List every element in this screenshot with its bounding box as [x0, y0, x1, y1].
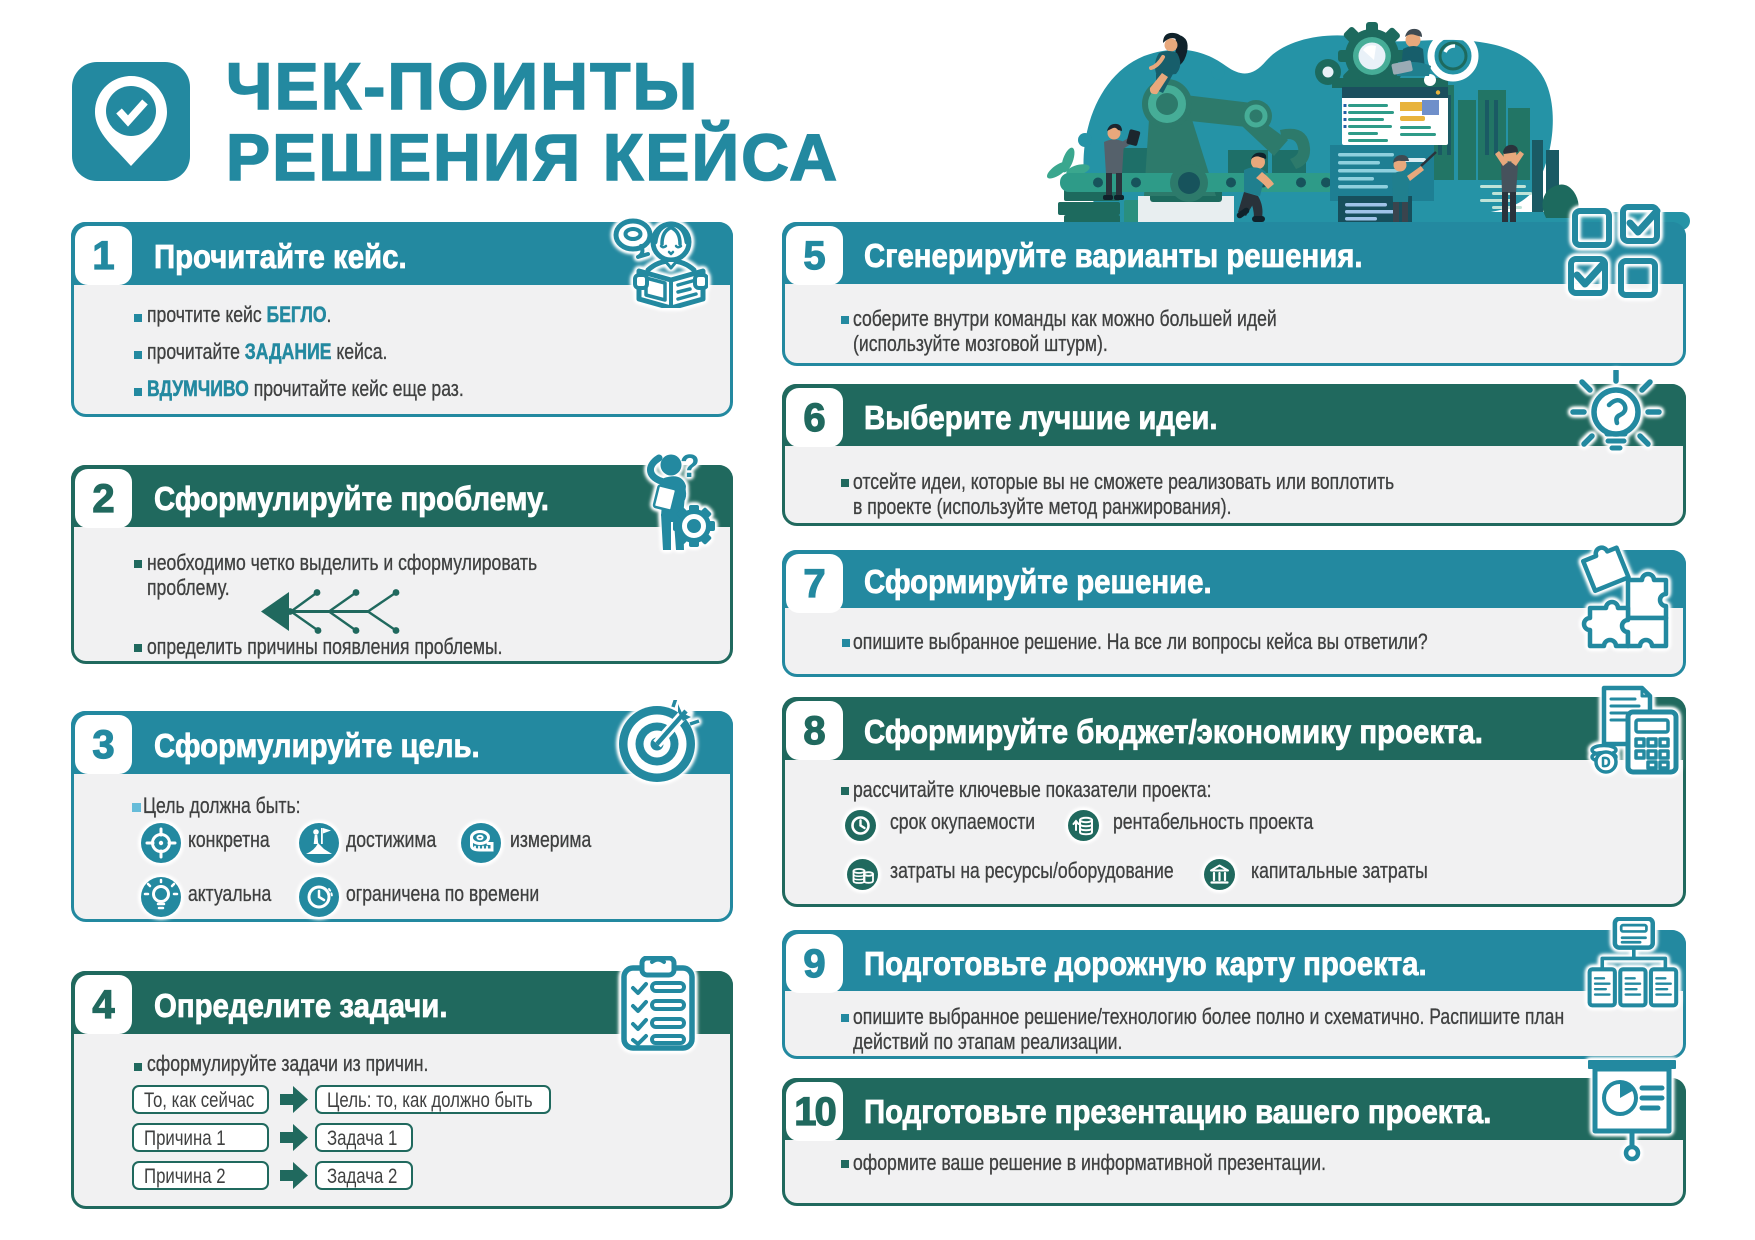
- svg-text:?: ?: [680, 450, 700, 484]
